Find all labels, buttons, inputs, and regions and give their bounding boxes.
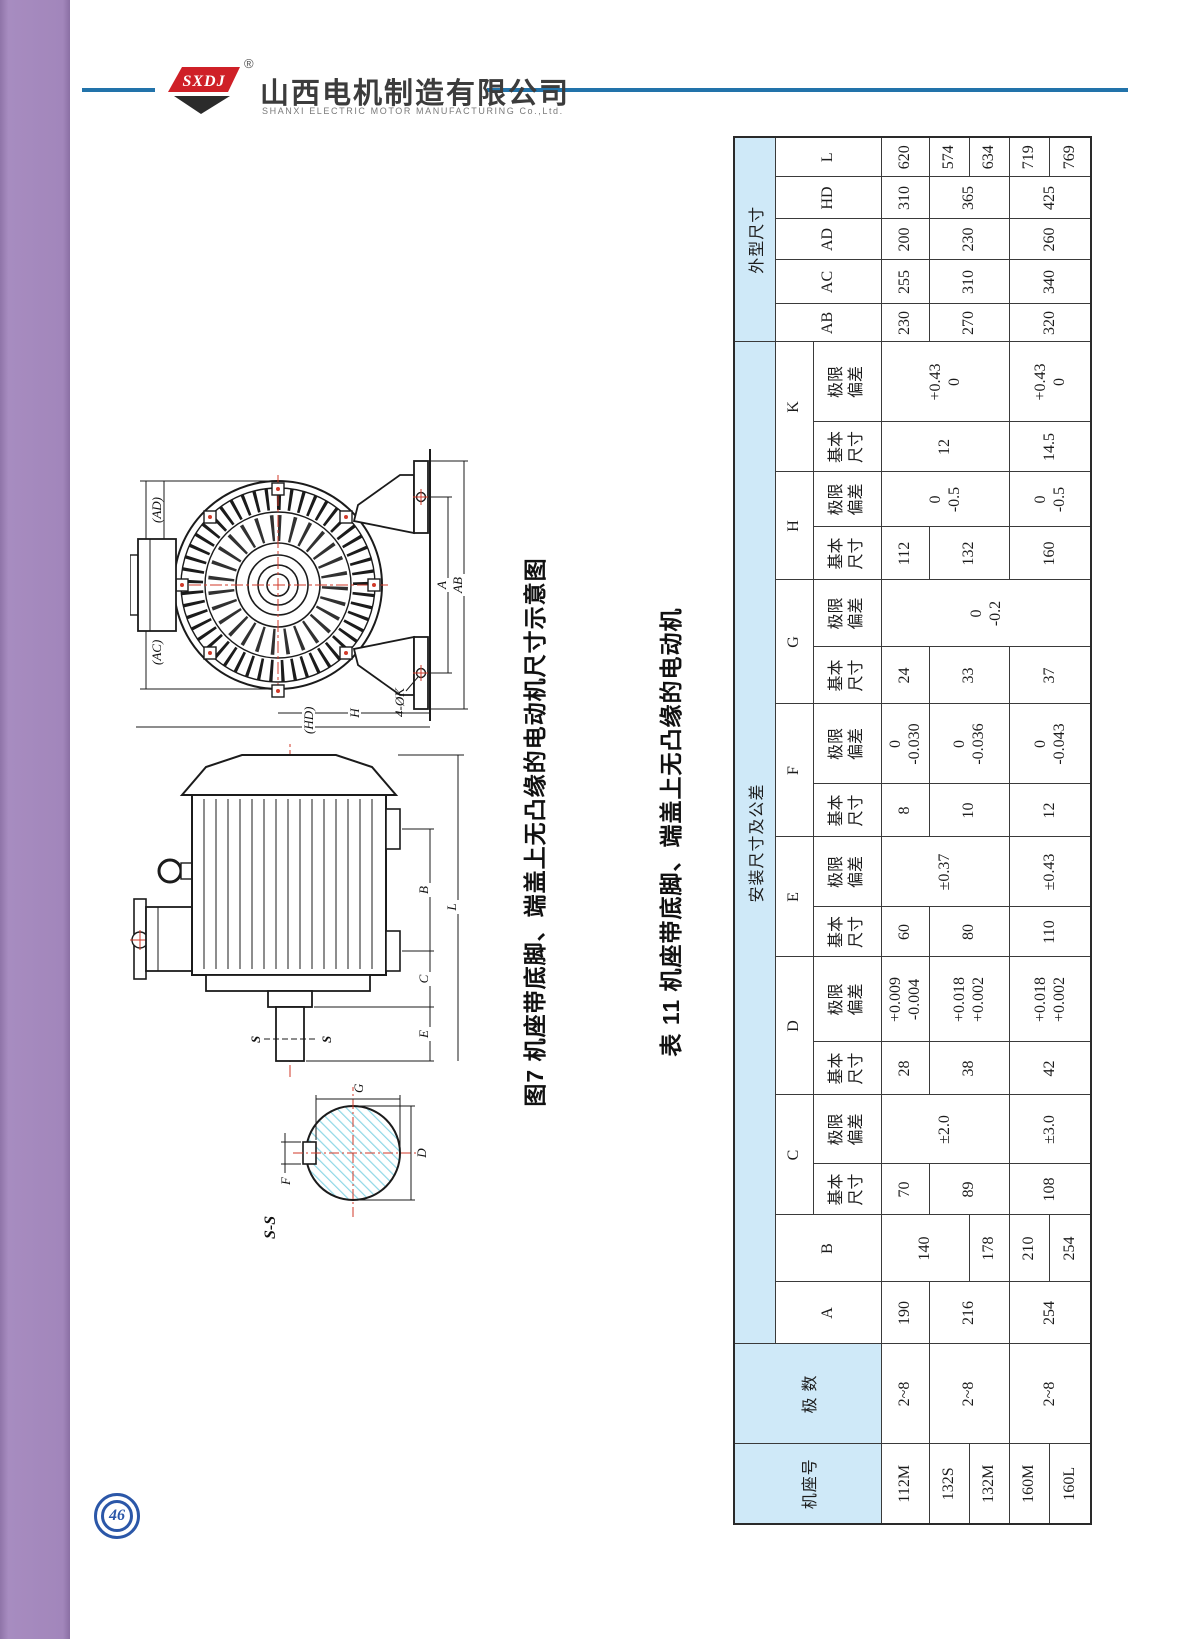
th-H-basic: 基本 尺寸 [813, 527, 881, 580]
cell-Fb-160: 12 [1009, 784, 1091, 837]
dim-label-b: B [416, 886, 431, 894]
th-AB: AB [775, 304, 881, 342]
figure-caption: 图7 机座带底脚、端盖上无凸缘的电动机尺寸示意图 [516, 137, 550, 1527]
cell-Cb-160: 108 [1009, 1164, 1091, 1215]
header-rule-right [487, 88, 1128, 92]
cell-AD-160: 260 [1009, 219, 1091, 260]
cell-Db-132: 38 [929, 1042, 1009, 1095]
logo-text: SXDJ [182, 73, 225, 90]
th-AD: AD [775, 219, 881, 260]
cell-Hb-160: 160 [1009, 527, 1091, 580]
dim-label-d: D [414, 1148, 429, 1159]
th-K-basic: 基本 尺寸 [813, 422, 881, 472]
cell-poles-132: 2~8 [929, 1344, 1009, 1444]
cell-A-132: 216 [929, 1282, 1009, 1344]
header-rule-left [82, 88, 155, 92]
motor-end-view-drawing: (AC) (AD) A AB H (HD) 4-ØK [130, 445, 475, 735]
th-outline-group: 外型尺寸 [734, 137, 775, 342]
cell-B-160M: 210 [1009, 1215, 1049, 1282]
th-F-tol: 极限 偏差 [813, 704, 881, 784]
page-number: 46 [101, 1500, 133, 1532]
th-L: L [775, 137, 881, 177]
cell-Eb-112: 60 [881, 907, 929, 957]
cell-Hb-112: 112 [881, 527, 929, 580]
cell-Kb-112-132: 12 [881, 422, 1009, 472]
cell-Fb-132: 10 [929, 784, 1009, 837]
dimension-table: 机座号 极 数 安装尺寸及公差 外型尺寸 A B C D E F G H K A… [733, 136, 1092, 1525]
cell-frame-160L: 160L [1049, 1444, 1091, 1524]
cell-Hb-132: 132 [929, 527, 1009, 580]
registered-mark: ® [244, 56, 254, 71]
th-H-tol: 极限 偏差 [813, 472, 881, 527]
th-AC: AC [775, 260, 881, 304]
cell-AC-112: 255 [881, 260, 929, 304]
cell-L-160L: 769 [1049, 137, 1091, 177]
cell-Kt-112-132: +0.43 0 [881, 342, 1009, 422]
company-logo: SXDJ ® 山西电机制造有限公司 SHANXI ELECTRIC MOTOR … [158, 48, 488, 124]
cell-Cb-132: 89 [929, 1164, 1009, 1215]
cell-Ct-112-132: ±2.0 [881, 1095, 1009, 1164]
dim-label-hd: (HD) [301, 707, 316, 734]
th-C-tol: 极限 偏差 [813, 1095, 881, 1164]
th-A: A [775, 1282, 881, 1344]
dim-label-c: C [416, 974, 431, 983]
th-K: K [775, 342, 813, 472]
cell-Ft-160: 0 -0.043 [1009, 704, 1091, 784]
table-title: 表 11 机座带底脚、端盖上无凸缘的电动机 [652, 137, 686, 1527]
th-HD: HD [775, 177, 881, 219]
section-mark-s2: S [319, 1036, 334, 1043]
cell-Kb-160: 14.5 [1009, 422, 1091, 472]
cell-Db-112: 28 [881, 1042, 929, 1095]
purple-sidebar [0, 0, 70, 1639]
th-H: H [775, 472, 813, 580]
th-E-basic: 基本 尺寸 [813, 907, 881, 957]
cell-Cb-112: 70 [881, 1164, 929, 1215]
section-mark-s1: S [248, 1036, 263, 1043]
cell-AC-160: 340 [1009, 260, 1091, 304]
cell-L-132M: 634 [969, 137, 1009, 177]
cell-Ct-160: ±3.0 [1009, 1095, 1091, 1164]
cell-Dt-160: +0.018 +0.002 [1009, 957, 1091, 1042]
dim-label-a: A [434, 581, 449, 590]
cell-AD-132: 230 [929, 219, 1009, 260]
th-C-basic: 基本 尺寸 [813, 1164, 881, 1215]
cell-L-112: 620 [881, 137, 929, 177]
th-B: B [775, 1215, 881, 1282]
page-number-badge: 46 [94, 1493, 140, 1539]
th-K-tol: 极限 偏差 [813, 342, 881, 422]
cell-A-112: 190 [881, 1282, 929, 1344]
th-poles: 极 数 [734, 1344, 881, 1444]
cell-AB-132: 270 [929, 304, 1009, 342]
cell-AD-112: 200 [881, 219, 929, 260]
cell-Gt-all: 0 -0.2 [881, 580, 1091, 647]
cell-Kt-160: +0.43 0 [1009, 342, 1091, 422]
cell-poles-112: 2~8 [881, 1344, 929, 1444]
dim-label-ab: AB [450, 577, 465, 594]
th-D-basic: 基本 尺寸 [813, 1042, 881, 1095]
th-D-tol: 极限 偏差 [813, 957, 881, 1042]
cell-frame-160M: 160M [1009, 1444, 1049, 1524]
dim-label-f: F [278, 1176, 293, 1186]
cell-A-160: 254 [1009, 1282, 1091, 1344]
cell-Ft-132: 0 -0.036 [929, 704, 1009, 784]
th-D: D [775, 957, 813, 1095]
motor-side-view-drawing: S S E C B L [128, 735, 473, 1087]
cell-poles-160: 2~8 [1009, 1344, 1091, 1444]
shaft-section-drawing: S-S F G D [245, 1075, 430, 1245]
cell-Db-160: 42 [1009, 1042, 1091, 1095]
th-G-basic: 基本 尺寸 [813, 647, 881, 704]
cell-Ft-112: 0 -0.030 [881, 704, 929, 784]
cell-AC-132: 310 [929, 260, 1009, 304]
th-F-basic: 基本 尺寸 [813, 784, 881, 837]
dim-label-ac: (AC) [149, 640, 164, 665]
section-label: S-S [262, 1216, 279, 1239]
cell-L-160M: 719 [1009, 137, 1049, 177]
catalog-page: { "header": { "logo_text": "SXDJ", "reg_… [0, 0, 1200, 1639]
cell-Eb-160: 110 [1009, 907, 1091, 957]
cell-Ht-112-132: 0 -0.5 [881, 472, 1009, 527]
dim-label-e: E [416, 1030, 431, 1039]
dim-label-4k: 4-ØK [392, 687, 407, 717]
th-G-tol: 极限 偏差 [813, 580, 881, 647]
cell-HD-160: 425 [1009, 177, 1091, 219]
cell-Eb-132: 80 [929, 907, 1009, 957]
cell-AB-112: 230 [881, 304, 929, 342]
cell-B-112-132S: 140 [881, 1215, 969, 1282]
cell-Fb-112: 8 [881, 784, 929, 837]
cell-HD-112: 310 [881, 177, 929, 219]
th-E: E [775, 837, 813, 957]
rotated-landscape-content: S-S F G D [128, 137, 1088, 1527]
th-F: F [775, 704, 813, 837]
cell-frame-132S: 132S [929, 1444, 969, 1524]
cell-Et-112-132: ±0.37 [881, 837, 1009, 907]
cell-Gb-112: 24 [881, 647, 929, 704]
dim-label-h: H [347, 708, 362, 719]
th-install-group: 安装尺寸及公差 [734, 342, 775, 1344]
cell-Dt-132: +0.018 +0.002 [929, 957, 1009, 1042]
dim-label-l: L [444, 903, 459, 911]
th-frame: 机座号 [734, 1444, 881, 1524]
cell-Et-160: ±0.43 [1009, 837, 1091, 907]
logo-emblem-icon: SXDJ [166, 62, 242, 118]
cell-Gb-132: 33 [929, 647, 1009, 704]
th-E-tol: 极限 偏差 [813, 837, 881, 907]
cell-Dt-112: +0.009 -0.004 [881, 957, 929, 1042]
cell-frame-112M: 112M [881, 1444, 929, 1524]
dim-label-ad: (AD) [149, 497, 164, 523]
cell-B-132M: 178 [969, 1215, 1009, 1282]
cell-B-160L: 254 [1049, 1215, 1091, 1282]
cell-frame-132M: 132M [969, 1444, 1009, 1524]
th-C: C [775, 1095, 813, 1215]
th-G: G [775, 580, 813, 704]
company-name-en: SHANXI ELECTRIC MOTOR MANUFACTURING Co.,… [262, 106, 564, 116]
cell-Gb-160: 37 [1009, 647, 1091, 704]
cell-AB-160: 320 [1009, 304, 1091, 342]
cell-Ht-160: 0 -0.5 [1009, 472, 1091, 527]
cell-HD-132: 365 [929, 177, 1009, 219]
cell-L-132S: 574 [929, 137, 969, 177]
